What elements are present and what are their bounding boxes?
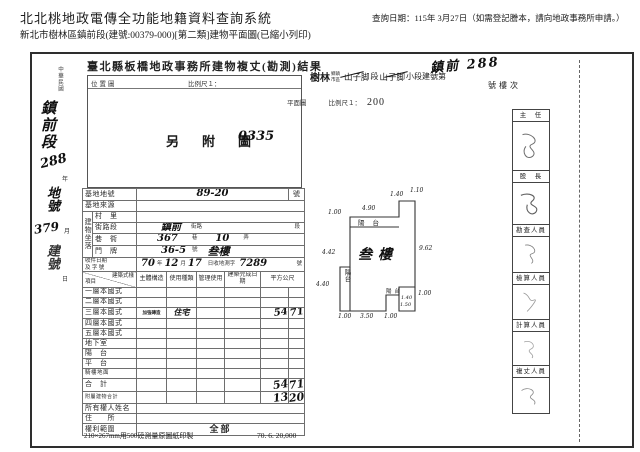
cell-address	[137, 414, 305, 424]
cell	[167, 359, 197, 369]
cell	[289, 359, 305, 369]
cell	[197, 379, 225, 392]
label-situs-group: 建物坐落	[83, 211, 93, 258]
row-lane: 巷 衖 367 巷 10 弄	[83, 234, 305, 246]
row-floor-2: 二層本國式	[83, 297, 305, 307]
row-arcade: 騎樓地面	[83, 369, 305, 379]
row-street: 街路段 鎮前 街路 段	[83, 222, 305, 234]
row-floor-5: 五層本國式	[83, 329, 305, 339]
cell-receipt: 70 年 12 月 17 日收地測字 7289 號	[137, 258, 305, 272]
system-title: 北北桃地政電傳全功能地籍資料查詢系統	[20, 8, 272, 27]
signature-stamp-icon	[513, 122, 549, 170]
unit-door-number: 號	[192, 248, 198, 254]
row-total: 合 計 54 71	[83, 379, 305, 392]
header-item-style: 建築式樣 項目	[83, 272, 137, 287]
dim-bottom-middle: 3.50	[360, 313, 373, 320]
cell-owner	[137, 404, 305, 414]
value-rights: 全部	[210, 424, 232, 434]
signature-stamp-icon	[513, 237, 549, 272]
building-survey-table: 基地地號 89-20 號 基地來源 建物坐落 村 里 街路段 鎮前 街路	[82, 188, 305, 436]
plan-title-line: 樹林 鄉鎮市區 山子脚 段 山子脚 小段建號第	[310, 69, 446, 84]
dim-bottom-right: 1.00	[384, 313, 397, 320]
label-annex-total: 附屬建物合計	[83, 391, 137, 404]
cell	[197, 391, 225, 404]
cell	[167, 297, 197, 307]
row-balcony: 陽 台	[83, 349, 305, 359]
value-receipt-year: 70	[141, 259, 155, 270]
building-number-suffix: 號樓次	[488, 80, 521, 91]
dim-left-low: 4.40	[316, 281, 329, 288]
cell	[225, 339, 261, 349]
cell	[167, 329, 197, 339]
query-date-note: 查詢日期：115年 3月27日（如需登記謄本，請向地政事務所申請。）	[372, 12, 625, 24]
cell-floor-3-area-int: 54	[261, 307, 289, 319]
cell-total-area-dec: 71	[289, 379, 305, 392]
header-use-type: 使用種類	[167, 272, 197, 287]
value-street: 鎮前	[161, 223, 181, 234]
cell	[167, 339, 197, 349]
dim-balcony-height: 1.00	[328, 209, 341, 216]
label-total: 合 計	[83, 379, 137, 392]
signature-stamp-icon	[513, 378, 549, 413]
plan-scale-label: 比例尺１：	[329, 97, 362, 107]
header-management: 管理使用	[197, 272, 225, 287]
value-annex-area-dec: 20	[289, 391, 305, 404]
dim-top-width: 4.90	[362, 205, 375, 212]
row-column-headers: 建築式樣 項目 主體構造 使用種類 管理使用 建築完成日期 平方公尺	[83, 272, 305, 287]
cell	[197, 307, 225, 319]
cell	[261, 319, 289, 329]
label-floor-3: 三層本國式	[83, 307, 137, 319]
cell	[167, 319, 197, 329]
fold-line	[579, 60, 580, 442]
paper-spec-note: 210×267mm用500磅測量原圖紙印製	[84, 431, 193, 441]
balcony-top-label: 陽台	[358, 217, 387, 227]
label-floor-5: 五層本國式	[83, 329, 137, 339]
location-map-title: 位置圖	[91, 78, 117, 88]
value-floor-3-use: 住宅	[174, 307, 190, 317]
cell	[261, 287, 289, 297]
row-floor-4: 四層本國式	[83, 319, 305, 329]
cell-floor-3-structure: 加強磚造	[137, 307, 167, 319]
cell	[225, 349, 261, 359]
value-total-area-dec: 71	[289, 379, 305, 392]
label-basement: 地下室	[83, 339, 137, 349]
value-annex-area-int: 13	[272, 391, 289, 404]
value-alley: 10	[215, 234, 229, 245]
balcony-bottom-right-label: 陽台	[386, 287, 403, 295]
cell-annex-area-dec: 20	[289, 391, 305, 404]
cell	[197, 339, 225, 349]
value-receipt-day: 17	[188, 259, 202, 270]
cell	[261, 359, 289, 369]
balcony-left-label: 陽台	[341, 269, 351, 282]
label-door-number: 門 牌	[93, 245, 137, 258]
signature-stamp-icon	[513, 332, 549, 365]
cell	[289, 349, 305, 359]
township-name: 樹林	[310, 69, 330, 84]
dim-step-height: 1.10	[410, 187, 423, 194]
year-unit: 年	[62, 174, 68, 183]
document-subtitle: 新北市樹林區鎮前段(建號:00379-000)[第二類]建物平面圖(已縮小列印)	[20, 27, 311, 41]
row-terrace: 平 台	[83, 359, 305, 369]
cell	[167, 391, 197, 404]
dim-bottom-left: 1.00	[338, 313, 351, 320]
value-receipt-number: 7289	[239, 259, 267, 270]
label-lane: 巷 衖	[93, 234, 137, 246]
cell	[261, 349, 289, 359]
cell	[137, 391, 167, 404]
value-receipt-month: 12	[164, 259, 178, 270]
cell	[197, 329, 225, 339]
plan-scale-row: 平面圖 比例尺１： 200	[287, 97, 385, 108]
cell-total-area-int: 54	[261, 379, 289, 392]
hw-section-name: 鎮前段	[38, 100, 59, 151]
page: 北北桃地政電傳全功能地籍資料查詢系統 查詢日期：115年 3月27日（如需登記謄…	[0, 0, 640, 452]
cell	[225, 287, 261, 297]
cell-door-number: 36-5 號 叁樓	[137, 245, 305, 258]
cell-lane: 367 巷 10 弄	[137, 234, 305, 246]
cell	[261, 369, 289, 379]
hw-section-number: 288	[39, 151, 69, 172]
cell	[137, 297, 167, 307]
value-floor-3-area-int: 54	[273, 307, 288, 319]
row-basement: 地下室	[83, 339, 305, 349]
row-door-number: 門 牌 36-5 號 叁樓	[83, 245, 305, 258]
label-receipt-line2: 及 字 號	[83, 265, 136, 272]
label-arcade: 騎樓地面	[83, 369, 137, 379]
cell	[197, 359, 225, 369]
cell	[137, 379, 167, 392]
header-structure: 主體構造	[137, 272, 167, 287]
signoff-box-section-chief: 股 長	[512, 170, 550, 225]
cell-street: 鎮前 街路 段	[137, 222, 305, 234]
dim-right-height: 9.62	[419, 245, 432, 252]
signoff-title-section-chief: 股 長	[513, 171, 549, 183]
row-receipt: 收件日期 及 字 號 70 年 12 月 17 日收地測字 7289 號	[83, 258, 305, 272]
cell	[225, 307, 261, 319]
header-style: 建築式樣	[112, 273, 134, 280]
dim-left-mid: 4.42	[322, 249, 335, 256]
dim-step-width: 1.40	[390, 191, 403, 198]
label-receipt-line1: 收件日期	[83, 258, 136, 265]
label-address: 住 所	[83, 414, 137, 424]
header-item: 項目	[85, 279, 96, 286]
label-receipt: 收件日期 及 字 號	[83, 258, 137, 272]
header-area: 平方公尺	[261, 272, 305, 287]
signoff-box-checker: 檢算人員	[512, 272, 550, 320]
location-map-scale-label: 比例尺１：	[188, 78, 221, 88]
hw-land-number-label: 地號	[42, 186, 61, 212]
cell	[261, 339, 289, 349]
cell	[197, 287, 225, 297]
cell	[261, 329, 289, 339]
signoff-title-checker: 檢算人員	[513, 273, 549, 285]
cell	[167, 369, 197, 379]
section-unit: 段	[371, 71, 379, 82]
cell	[225, 379, 261, 392]
value-floor-3-structure: 加強磚造	[143, 310, 161, 315]
row-floor-3: 三層本國式 加強磚造 住宅 54 71	[83, 307, 305, 319]
cell	[225, 319, 261, 329]
signoff-box-calculator: 計算人員	[512, 319, 550, 366]
cell	[197, 349, 225, 359]
cell	[289, 339, 305, 349]
unit-street: 街路	[191, 225, 202, 231]
row-annex-total: 附屬建物合計 13 20	[83, 391, 305, 404]
cell	[289, 369, 305, 379]
row-address: 住 所	[83, 414, 305, 424]
cell-floor-3-use: 住宅	[167, 307, 197, 319]
signoff-box-chief: 主 任	[512, 109, 550, 171]
plan-label: 平面圖	[287, 97, 307, 107]
day-unit: 日	[62, 274, 68, 283]
value-total-area-int: 54	[272, 379, 289, 392]
label-receipt-prefix: 日收地測字	[208, 262, 236, 268]
hw-attached-map-number: 0335	[238, 129, 274, 144]
era-label: 中華民國	[56, 66, 64, 92]
floor-name-label: 叁樓	[358, 244, 398, 264]
label-owner: 所有權人姓名	[83, 404, 137, 414]
cell-annex-area-int: 13	[261, 391, 289, 404]
signature-stamp-icon	[513, 285, 549, 319]
scanned-document: 臺北縣板橋地政事務所建物複丈(勘測)結果 中華民國 鎮前段 288 年 地號 3…	[30, 52, 634, 448]
value-site-number: 89-20	[197, 189, 229, 200]
hw-building-number-label: 建號	[42, 244, 61, 270]
cell-site-source	[137, 200, 305, 211]
cell	[137, 287, 167, 297]
cell	[261, 297, 289, 307]
unit-receipt-year: 年	[157, 262, 163, 268]
cell	[225, 297, 261, 307]
cell	[137, 359, 167, 369]
subsection-unit: 小段建號第	[406, 71, 446, 82]
cell	[167, 349, 197, 359]
dim-br-right: 1.00	[418, 290, 431, 297]
plan-scale-value: 200	[367, 97, 385, 108]
dim-br-width: 1.40	[401, 295, 412, 301]
signature-stamp-icon	[513, 183, 549, 224]
signoff-title-surveyor: 複丈人員	[513, 366, 549, 378]
label-village: 村 里	[93, 211, 137, 222]
location-map-header: 位置圖 比例尺１：	[88, 76, 301, 89]
label-balcony: 陽 台	[83, 349, 137, 359]
cell	[137, 319, 167, 329]
row-site-number: 基地地號 89-20 號	[83, 189, 305, 201]
cell	[137, 349, 167, 359]
signoff-title-inspector: 勘查人員	[513, 225, 549, 237]
row-site-source: 基地來源	[83, 200, 305, 211]
dim-br-height: 1.50	[400, 302, 411, 308]
label-site-source: 基地來源	[83, 200, 137, 211]
month-unit: 月	[64, 226, 70, 235]
label-site-number: 基地地號	[83, 189, 137, 201]
cell-site-number: 89-20	[137, 189, 289, 201]
cell	[167, 379, 197, 392]
cell-village	[137, 211, 305, 222]
cell	[225, 359, 261, 369]
cell	[137, 369, 167, 379]
signoff-title-calculator: 計算人員	[513, 320, 549, 332]
label-floor-4: 四層本國式	[83, 319, 137, 329]
row-owner: 所有權人姓名	[83, 404, 305, 414]
unit-receipt-month: 月	[180, 262, 186, 268]
cell	[225, 369, 261, 379]
survey-result-title: 臺北縣板橋地政事務所建物複丈(勘測)結果	[87, 58, 322, 74]
location-map-box: 位置圖 比例尺１： 另 附 圖 0335	[87, 75, 302, 188]
cell	[167, 287, 197, 297]
cell	[197, 297, 225, 307]
cell	[225, 329, 261, 339]
label-terrace: 平 台	[83, 359, 137, 369]
cell	[137, 339, 167, 349]
unit-alley: 弄	[243, 236, 249, 242]
signoff-column: 主 任 股 長 勘查人員 檢算人員	[512, 110, 550, 414]
cell	[197, 369, 225, 379]
signoff-box-surveyor: 複丈人員	[512, 365, 550, 414]
cell	[197, 319, 225, 329]
header-completion-date: 建築完成日期	[225, 272, 261, 287]
cell	[137, 329, 167, 339]
label-floor-2: 二層本國式	[83, 297, 137, 307]
value-door-floor: 叁樓	[208, 246, 230, 258]
value-door-number: 36-5	[161, 246, 186, 257]
row-floor-1: 一層本國式	[83, 287, 305, 297]
label-street: 街路段	[93, 222, 137, 234]
value-lane: 367	[157, 234, 178, 245]
row-village: 建物坐落 村 里	[83, 211, 305, 222]
label-floor-1: 一層本國式	[83, 287, 137, 297]
floor-plan: 1.00 4.90 1.40 1.10 9.62 4.42 4.40 陽台 陽台…	[300, 165, 495, 337]
cell	[225, 391, 261, 404]
hw-building-number: 379	[33, 219, 60, 236]
print-run-code: 70. 6. 20,000	[257, 431, 296, 440]
signoff-box-inspector: 勘查人員	[512, 224, 550, 273]
unit-lane: 巷	[192, 236, 198, 242]
signoff-title-chief: 主 任	[513, 110, 549, 122]
